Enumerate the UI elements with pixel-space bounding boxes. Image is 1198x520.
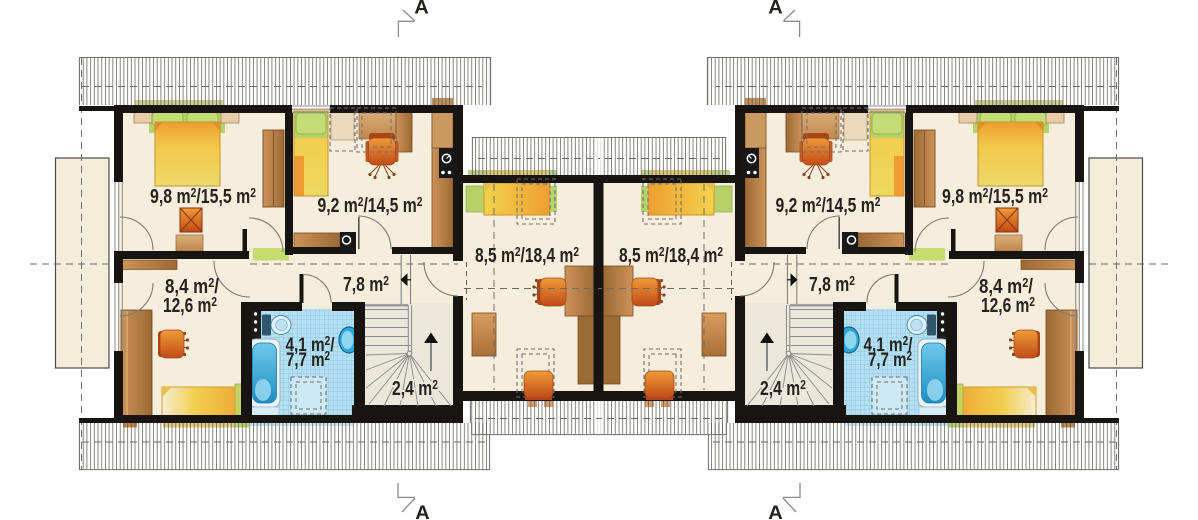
svg-text:A: A: [414, 0, 429, 19]
svg-text:12,6 m2: 12,6 m2: [981, 294, 1035, 317]
svg-text:9,8 m2/15,5 m2: 9,8 m2/15,5 m2: [942, 185, 1048, 208]
svg-text:7,7 m2: 7,7 m2: [868, 349, 912, 371]
svg-text:A: A: [768, 0, 783, 19]
svg-text:12,6 m2: 12,6 m2: [163, 294, 217, 317]
svg-text:7,8 m2: 7,8 m2: [343, 273, 389, 296]
svg-text:A: A: [415, 503, 430, 520]
svg-text:9,2 m2/14,5 m2: 9,2 m2/14,5 m2: [318, 194, 423, 217]
svg-text:9,8 m2/15,5 m2: 9,8 m2/15,5 m2: [150, 185, 256, 208]
svg-text:7,8 m2: 7,8 m2: [809, 273, 855, 296]
svg-text:9,2 m2/14,5 m2: 9,2 m2/14,5 m2: [776, 194, 881, 217]
svg-text:2,4 m2: 2,4 m2: [760, 377, 806, 400]
svg-text:A: A: [768, 503, 783, 520]
svg-text:8,5 m2/18,4 m2: 8,5 m2/18,4 m2: [619, 244, 723, 267]
svg-text:7,7 m2: 7,7 m2: [286, 349, 330, 371]
svg-text:8,5 m2/18,4 m2: 8,5 m2/18,4 m2: [475, 244, 579, 267]
svg-text:2,4 m2: 2,4 m2: [392, 377, 438, 400]
